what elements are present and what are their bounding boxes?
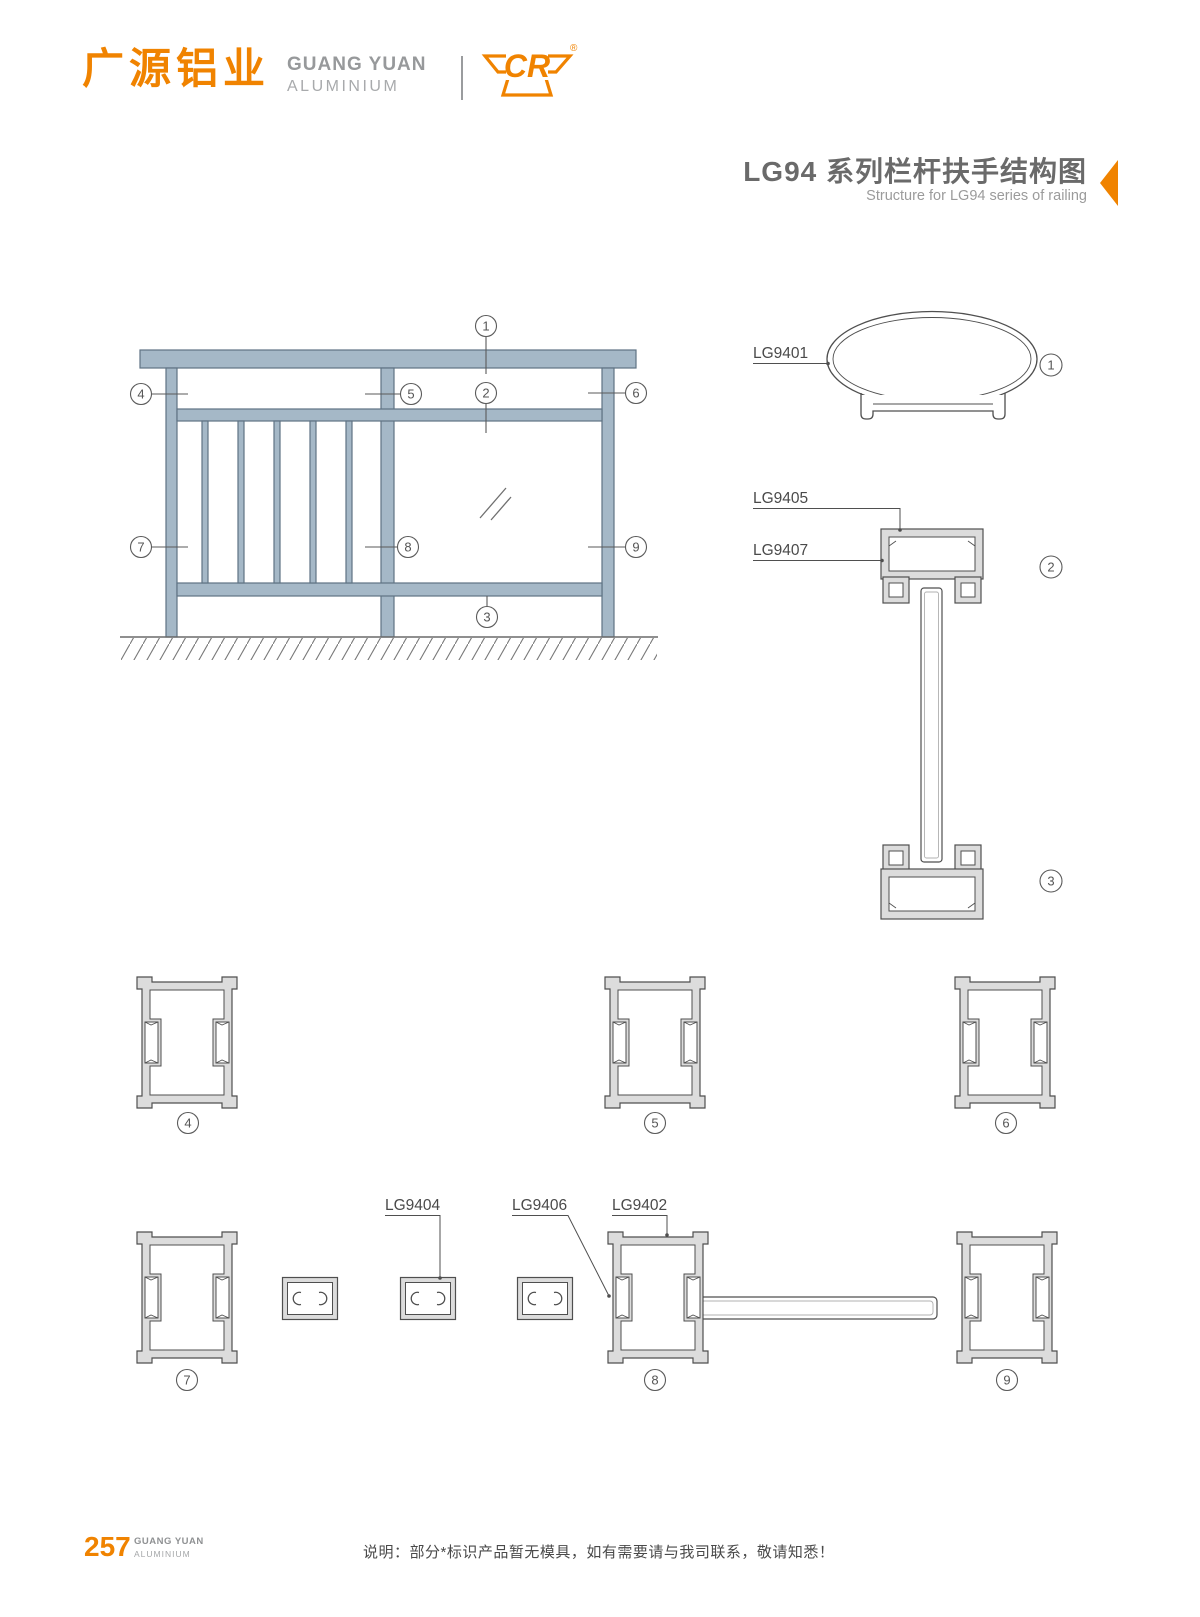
ground-hatching [120,637,658,660]
baluster-tube-profile [518,1278,573,1320]
callout-2: 2 [476,383,497,404]
section-glass-panel-vertical [921,588,942,862]
page-number: 257 [84,1533,131,1561]
svg-text:5: 5 [651,1116,658,1131]
section-callout-9: 9 [997,1370,1018,1391]
section-handrail-profile [827,312,1037,430]
svg-text:LG9404: LG9404 [385,1197,441,1214]
baluster [238,421,244,583]
callout-9: 9 [626,537,647,558]
callout-1: 1 [476,316,497,337]
svg-text:6: 6 [632,386,639,401]
label-lg9407: LG9407 [753,542,884,562]
section-glass-panel-horizontal [697,1297,937,1319]
footer-brand-line2: ALUMINIUM [134,1550,204,1559]
section-callout-7: 7 [177,1370,198,1391]
baluster [274,421,280,583]
svg-text:LG9405: LG9405 [753,490,808,507]
svg-text:LG9402: LG9402 [612,1197,667,1214]
label-lg9401: LG9401 [753,345,830,365]
svg-text:1: 1 [482,319,489,334]
section-callout-8: 8 [645,1370,666,1391]
callout-6: 6 [626,383,647,404]
profile-section-4 [137,977,237,1108]
row3-callouts: 7 8 9 [177,1370,1018,1391]
rail-lower [177,583,602,596]
baluster [310,421,316,583]
footer-brand-line1: GUANG YUAN [134,1537,204,1547]
svg-text:3: 3 [483,610,490,625]
svg-text:8: 8 [404,540,411,555]
post-left [166,368,177,637]
railing-elevation [140,350,636,637]
row2-callouts: 4 5 6 [178,1113,1017,1134]
svg-text:8: 8 [651,1373,658,1388]
post-right [602,368,614,637]
label-lg9405: LG9405 [753,490,902,532]
section-callout-5: 5 [645,1113,666,1134]
profile-section-5 [605,977,705,1108]
section-callout-1: 1 [1040,354,1062,376]
catalog-page: 广源铝业 GUANG YUAN ALUMINIUM CR ® LG94 系列栏杆… [0,0,1200,1617]
svg-text:9: 9 [1003,1373,1010,1388]
svg-text:LG9406: LG9406 [512,1197,567,1214]
svg-text:4: 4 [137,387,144,402]
baluster-tube-profile [283,1278,338,1320]
svg-text:6: 6 [1002,1116,1009,1131]
svg-text:LG9407: LG9407 [753,542,808,559]
svg-text:3: 3 [1047,874,1054,889]
section-callout-2: 2 [1040,556,1062,578]
svg-text:1: 1 [1047,358,1054,373]
svg-text:4: 4 [184,1116,191,1131]
profile-section-8 [608,1232,708,1363]
svg-text:9: 9 [632,540,639,555]
callout-8: 8 [398,537,419,558]
baluster [202,421,208,583]
handrail-top [140,350,636,368]
profile-section-7 [137,1232,237,1363]
baluster [346,421,352,583]
baluster-tube-profile [401,1278,456,1320]
callout-5: 5 [401,384,422,405]
rail-upper [177,409,602,421]
post-middle [381,368,394,637]
svg-text:LG9401: LG9401 [753,345,808,362]
profile-section-9 [957,1232,1057,1363]
section-callout-3: 3 [1040,870,1062,892]
profile-section-6 [955,977,1055,1108]
footer-brand: GUANG YUAN ALUMINIUM [134,1537,204,1558]
svg-text:2: 2 [1047,560,1054,575]
svg-text:7: 7 [137,540,144,555]
label-lg9404: LG9404 [385,1197,442,1280]
callout-4: 4 [131,384,152,405]
railing-structure-drawing: 1 2 3 4 5 6 7 [0,0,1200,1617]
section-callout-6: 6 [996,1113,1017,1134]
svg-text:2: 2 [482,386,489,401]
callout-7: 7 [131,537,152,558]
svg-text:5: 5 [407,387,414,402]
callout-3: 3 [477,607,498,628]
glass-mark-icon [480,488,511,520]
section-callout-4: 4 [178,1113,199,1134]
footer-note: 说明：部分*标识产品暂无模具，如有需要请与我司联系，敬请知悉！ [363,1541,834,1562]
svg-text:7: 7 [183,1373,190,1388]
label-lg9402: LG9402 [612,1197,669,1237]
